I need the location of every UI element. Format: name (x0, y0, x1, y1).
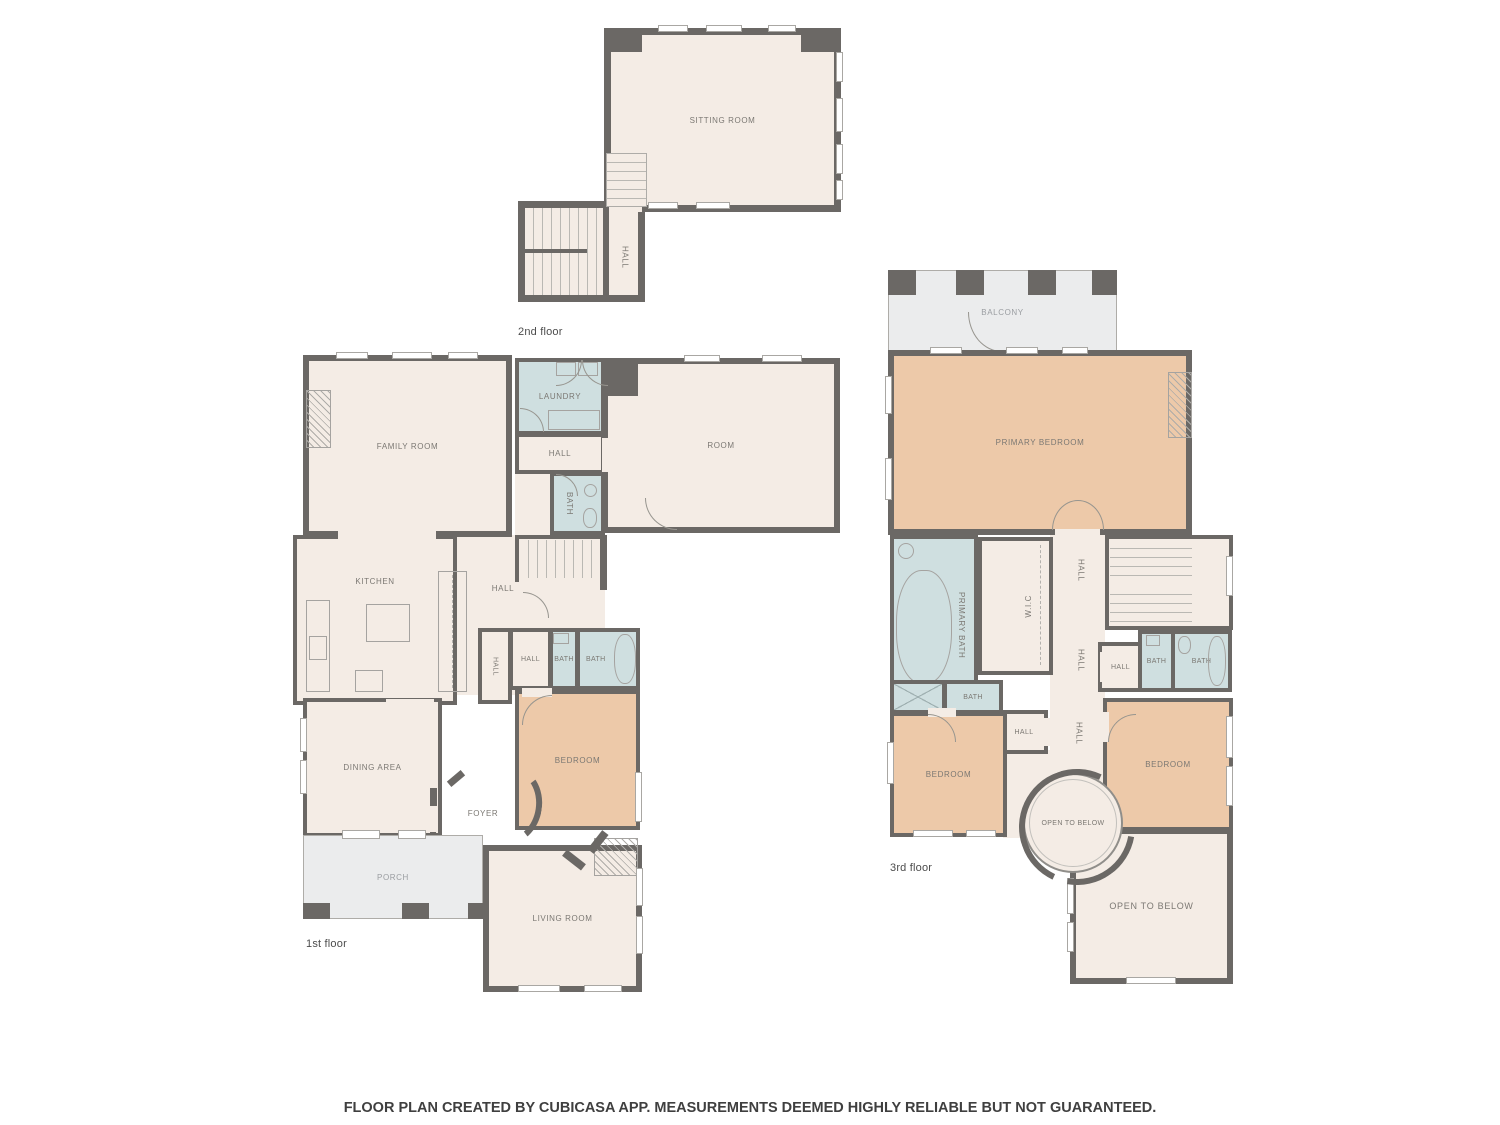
chimney (1168, 372, 1192, 438)
closet-shelf-line (1040, 545, 1041, 665)
window (930, 347, 962, 354)
toilet (1178, 636, 1191, 654)
window (885, 458, 892, 500)
window (913, 830, 953, 837)
hall-label-zone: HALL (1070, 546, 1092, 594)
room-hall-small-center: HALL (1000, 710, 1048, 754)
balcony-post (888, 270, 916, 295)
disclaimer-text: FLOOR PLAN CREATED BY CUBICASA APP. MEAS… (0, 1100, 1500, 1116)
room-label: HALL (1075, 722, 1084, 744)
room-label: PRIMARY BATH (957, 592, 966, 658)
sink (898, 543, 914, 559)
window (1062, 347, 1088, 354)
room-label: BEDROOM (1145, 760, 1191, 769)
floor-plan-canvas: SITTING ROOM HALL 2nd floor FAMILY ROOM (0, 0, 1500, 1125)
window (885, 376, 892, 414)
window (1126, 977, 1176, 984)
floor-plan-3rd: BALCONY PRIMARY BEDROOM PRIMARY BATH W.I… (0, 0, 1500, 1125)
room-label: BEDROOM (926, 770, 972, 779)
room-label: PRIMARY BEDROOM (996, 438, 1085, 447)
floor-name: 3rd floor (890, 862, 932, 874)
window (966, 830, 996, 837)
room-label: W.I.C (1024, 595, 1033, 618)
bathtub (896, 570, 952, 684)
door-opening (1100, 652, 1109, 682)
window (1067, 922, 1074, 952)
door-opening (1042, 718, 1054, 746)
room-label: HALL (1111, 664, 1130, 671)
staircase (1110, 540, 1192, 578)
balcony-post (1092, 270, 1117, 295)
room-label: HALL (1015, 729, 1034, 736)
sink (1146, 635, 1160, 646)
room-label: BATH (963, 694, 983, 701)
balcony-post (956, 270, 984, 295)
hall-label-zone: HALL (1068, 709, 1090, 757)
balcony: BALCONY (888, 270, 1117, 354)
window (1226, 766, 1233, 806)
window (1226, 556, 1233, 596)
room-primary-bedroom: PRIMARY BEDROOM (888, 350, 1192, 535)
room-label: OPEN TO BELOW (1109, 901, 1193, 911)
staircase (1110, 586, 1192, 624)
bathtub (1208, 636, 1226, 686)
room-wic: W.I.C (978, 537, 1053, 675)
hall-label-zone: HALL (1070, 636, 1092, 684)
room-label: HALL (1077, 559, 1086, 581)
room-label: HALL (1077, 649, 1086, 671)
window (1006, 347, 1038, 354)
room-label: BATH (1147, 658, 1167, 665)
balcony-post (1028, 270, 1056, 295)
wall-opening (1055, 529, 1100, 542)
window (887, 742, 894, 784)
window (1226, 716, 1233, 758)
